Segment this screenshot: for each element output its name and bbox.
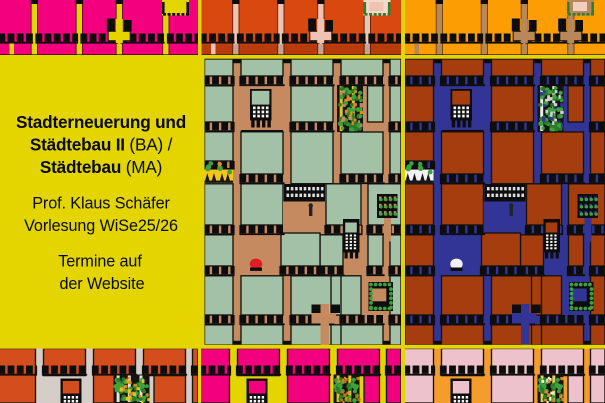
- svg-text:Termine auf: Termine auf: [58, 253, 142, 271]
- svg-text:Städtebau II (BA) /: Städtebau II (BA) /: [30, 135, 173, 155]
- svg-text:Vorlesung WiSe25/26: Vorlesung WiSe25/26: [24, 217, 178, 235]
- svg-text:Prof. Klaus Schäfer: Prof. Klaus Schäfer: [32, 195, 170, 213]
- svg-text:der Website: der Website: [60, 275, 145, 293]
- svg-text:Stadterneuerung und: Stadterneuerung und: [16, 112, 186, 132]
- svg-text:Städtebau (MA): Städtebau (MA): [40, 157, 162, 177]
